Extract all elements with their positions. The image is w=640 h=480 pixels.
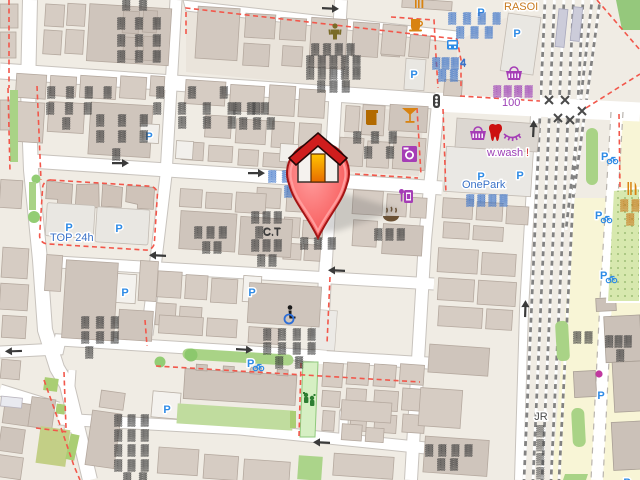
svg-text:▒▒▒▒: ▒▒▒▒	[263, 342, 322, 355]
svg-text:▒▒▒▒: ▒▒▒▒	[493, 85, 535, 98]
svg-text:▒: ▒	[537, 438, 545, 451]
svg-text:▒▒: ▒▒	[573, 331, 596, 344]
svg-text:P: P	[516, 170, 523, 182]
svg-text:▒▒▒: ▒▒▒	[114, 429, 154, 442]
svg-text:▒▒: ▒▒	[364, 146, 408, 159]
svg-text:▒▒: ▒▒	[275, 356, 315, 369]
svg-text:P: P	[513, 28, 520, 40]
svg-text:▒▒▒: ▒▒▒	[374, 228, 408, 241]
svg-text:TOP 24h: TOP 24h	[50, 232, 94, 244]
svg-text:▒▒▒: ▒▒▒	[456, 26, 499, 39]
svg-text:RASOI: RASOI	[504, 1, 538, 13]
svg-text:▒: ▒	[616, 349, 624, 362]
svg-text:▒▒▒: ▒▒▒	[233, 102, 274, 115]
svg-text:▒: ▒	[537, 452, 545, 465]
svg-text:▒▒: ▒▒	[122, 0, 156, 11]
svg-text:P: P	[248, 287, 255, 299]
svg-text:100: 100	[502, 97, 520, 109]
svg-text:P: P	[163, 404, 170, 416]
svg-text:▒▒▒: ▒▒▒	[251, 239, 285, 252]
svg-text:JR: JR	[534, 411, 548, 423]
svg-text:▒▒▒: ▒▒▒	[46, 102, 102, 115]
svg-text:▒▒▒: ▒▒▒	[81, 331, 125, 344]
svg-text:P: P	[121, 287, 128, 299]
svg-text:▒▒▒▒: ▒▒▒▒	[311, 43, 358, 56]
svg-text:▒▒▒: ▒▒▒	[353, 131, 406, 144]
svg-text:▒▒▒: ▒▒▒	[114, 414, 154, 427]
svg-text:▒▒: ▒▒	[438, 69, 462, 82]
svg-text:▒▒▒▒: ▒▒▒▒	[466, 194, 510, 207]
svg-text:▒▒▒▒▒: ▒▒▒▒▒	[306, 55, 364, 68]
svg-text:▒▒▒: ▒▒▒	[96, 114, 161, 127]
svg-text:P: P	[597, 390, 604, 402]
svg-text:▒▒: ▒▒	[620, 199, 640, 212]
svg-text:▒▒▒▒: ▒▒▒▒	[448, 12, 507, 25]
svg-text:▒▒▒: ▒▒▒	[117, 50, 170, 63]
svg-text:▒▒: ▒▒	[257, 254, 280, 267]
svg-text:P: P	[115, 223, 122, 235]
svg-text:▒▒▒4: ▒▒▒4	[432, 57, 468, 70]
svg-text:▒▒▒: ▒▒▒	[114, 444, 154, 457]
svg-text:P: P	[410, 69, 417, 81]
svg-text:▒▒▒▒▒: ▒▒▒▒▒	[306, 67, 364, 80]
svg-text:▒▒▒▒: ▒▒▒▒	[425, 444, 477, 457]
svg-text:w.wash: w.wash	[486, 147, 523, 159]
svg-text:▒▒: ▒▒	[202, 241, 225, 254]
svg-text:▒: ▒	[537, 466, 545, 479]
svg-text:▒: ▒	[112, 148, 120, 161]
svg-text:▒▒▒: ▒▒▒	[251, 211, 285, 224]
svg-text:▒: ▒	[537, 424, 545, 437]
svg-text:▒▒▒▒: ▒▒▒▒	[263, 328, 322, 341]
svg-text:OnePark: OnePark	[462, 179, 506, 191]
svg-text:▒▒: ▒▒	[437, 458, 463, 471]
svg-text:▒▒▒: ▒▒▒	[96, 130, 161, 143]
svg-text:▒▒▒: ▒▒▒	[117, 34, 170, 47]
svg-text:▒▒: ▒▒	[123, 472, 155, 480]
svg-text:▒▒▒: ▒▒▒	[117, 17, 170, 30]
svg-text:▒▒▒: ▒▒▒	[114, 459, 154, 472]
svg-text:▒: ▒	[62, 117, 70, 130]
svg-text:▒▒▒: ▒▒▒	[300, 237, 341, 250]
svg-text:▒▒▒▒: ▒▒▒▒	[47, 86, 122, 99]
svg-text:▒▒▒: ▒▒▒	[156, 86, 251, 99]
svg-text:▒▒▒: ▒▒▒	[239, 117, 280, 130]
svg-text:▒▒▒: ▒▒▒	[194, 226, 231, 239]
svg-text:!: !	[526, 147, 529, 159]
svg-text:▒▒▒: ▒▒▒	[81, 316, 125, 329]
svg-text:▒▒▒: ▒▒▒	[605, 335, 633, 348]
svg-text:▒: ▒	[85, 346, 93, 359]
svg-text:▒C.T: ▒C.T	[255, 226, 281, 239]
svg-text:▒▒▒: ▒▒▒	[317, 80, 354, 93]
svg-text:▒: ▒	[626, 213, 634, 226]
